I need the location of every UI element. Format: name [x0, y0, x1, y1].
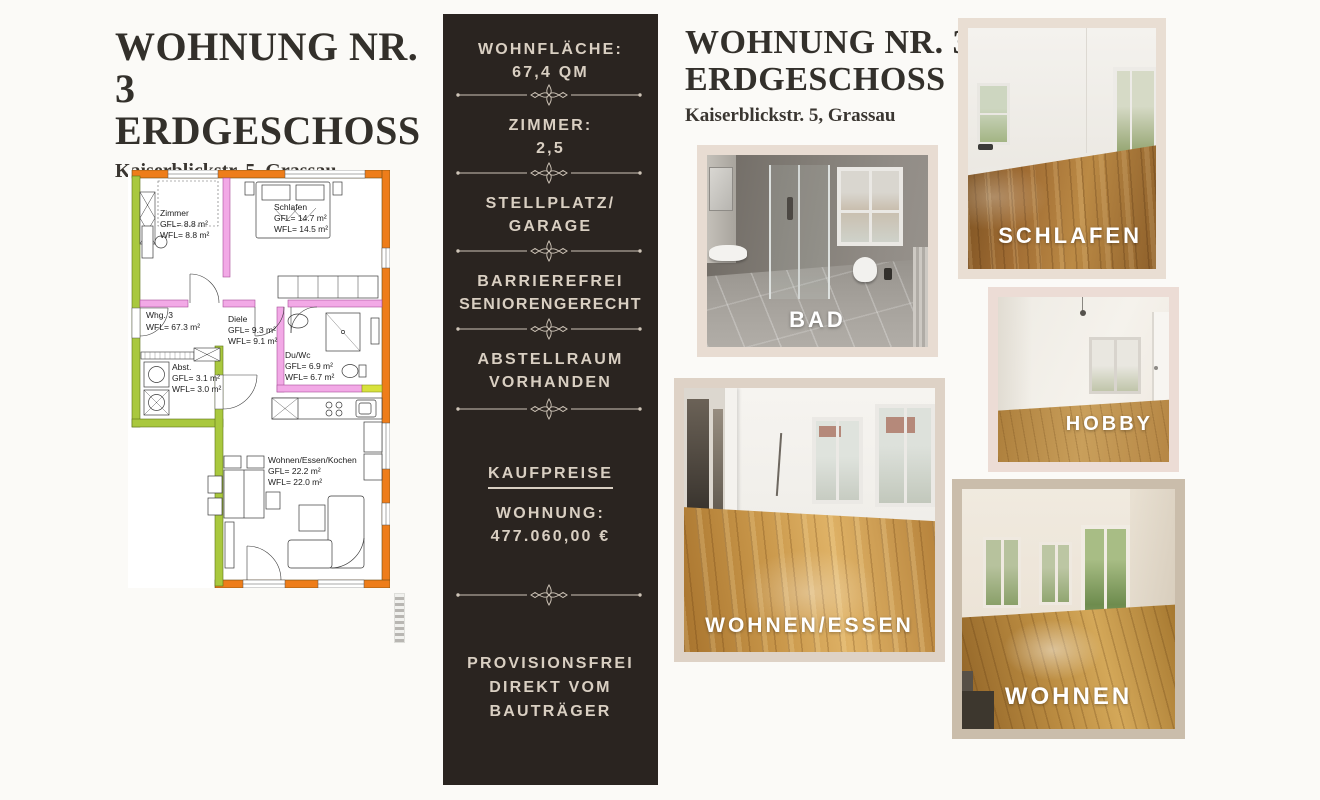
ornament-divider — [455, 160, 643, 186]
room-abst-wfl: WFL= 3.0 m² — [172, 384, 222, 394]
info-value: 67,4 QM — [443, 61, 658, 84]
info-value: 2,5 — [443, 137, 658, 160]
info-value: GARAGE — [443, 215, 658, 238]
photo-label-hobby: HOBBY — [1066, 413, 1153, 436]
room-diele-gfl: GFL= 9.3 m² — [228, 325, 276, 335]
ornament-divider — [455, 316, 643, 342]
info-wohnflaeche: WOHNFLÄCHE: 67,4 QM — [443, 38, 658, 84]
photo-label-wohnen: WOHNEN — [962, 683, 1175, 711]
price-block: WOHNUNG: 477.060,00 € — [443, 502, 658, 548]
toilet — [853, 257, 877, 282]
room-diele-name: Diele — [228, 314, 248, 324]
bathroom-mirror — [709, 167, 733, 211]
door-handle — [978, 144, 993, 150]
room-wohnen-name: Wohnen/Essen/Kochen — [268, 455, 357, 465]
photo-label-schlafen: SCHLAFEN — [998, 223, 1142, 249]
info-barrierefrei: BARRIEREFREI SENIORENGERECHT — [443, 270, 658, 316]
price-heading-text: KAUFPREISE — [488, 462, 613, 489]
price-heading: KAUFPREISE — [443, 462, 658, 489]
room-zimmer-gfl: GFL= 8.8 m² — [160, 219, 208, 229]
info-zimmer: ZIMMER: 2,5 — [443, 114, 658, 160]
sink — [709, 245, 747, 260]
info-value: SENIORENGERECHT — [443, 293, 658, 316]
room-schlafen-wfl: WFL= 14.5 m² — [274, 224, 328, 234]
room-wohnen-wfl: WFL= 22.0 m² — [268, 477, 322, 487]
shower-glass-edge — [798, 165, 800, 299]
floorplan-container: Zimmer GFL= 8.8 m² WFL= 8.8 m² Schlafen … — [128, 170, 390, 588]
title-line-2: ERDGESCHOSS — [115, 110, 445, 152]
ornament-divider — [455, 582, 643, 608]
info-value: VORHANDEN — [443, 371, 658, 394]
room-zimmer-wfl: WFL= 8.8 m² — [160, 230, 210, 240]
room-duwc-gfl: GFL= 6.9 m² — [285, 361, 333, 371]
room-wohnen-gfl: GFL= 22.2 m² — [268, 466, 321, 476]
hobby-window — [1089, 337, 1141, 394]
wohnen-window-2 — [1039, 542, 1073, 606]
floor-sheen — [994, 614, 1111, 686]
room-diele-wfl: WFL= 9.1 m² — [228, 336, 278, 346]
plan-stamp — [394, 593, 405, 643]
left-header: WOHNUNG NR. 3 ERDGESCHOSS Kaiserblickstr… — [115, 26, 445, 183]
yellow-wall-segment — [362, 385, 382, 392]
page-title-right: WOHNUNG NR. 3 ERDGESCHOSS — [685, 24, 985, 98]
bedroom-corner — [1086, 28, 1087, 153]
ornament-divider — [455, 238, 643, 264]
wohnen-window-1 — [983, 537, 1021, 608]
title-line-2: ERDGESCHOSS — [685, 61, 985, 98]
apartment-label-line1: Whg. 3 — [146, 310, 173, 320]
room-duwc-wfl: WFL= 6.7 m² — [285, 372, 335, 382]
title-line-1: WOHNUNG NR. 3 — [685, 24, 985, 61]
info-panel: WOHNFLÄCHE: 67,4 QM ZIMMER: 2,5 STELLPLA… — [443, 14, 658, 785]
wohnen-essen-photo-image: WOHNEN/ESSEN — [684, 388, 935, 652]
bathroom-window — [837, 167, 902, 246]
page-title: WOHNUNG NR. 3 ERDGESCHOSS — [115, 26, 445, 152]
price-value: 477.060,00 € — [443, 525, 658, 548]
room-schlafen-name: Schlafen — [274, 202, 307, 212]
floorplan: Zimmer GFL= 8.8 m² WFL= 8.8 m² Schlafen … — [128, 170, 390, 588]
floor-sheen — [968, 161, 1053, 233]
room-abst-gfl: GFL= 3.1 m² — [172, 373, 220, 383]
ornament-divider — [455, 82, 643, 108]
room-abst-name: Abst. — [172, 362, 191, 372]
photo-label-wohnen-essen: WOHNEN/ESSEN — [684, 614, 935, 638]
info-label: ABSTELLRAUM — [443, 348, 658, 371]
info-label: ZIMMER: — [443, 114, 658, 137]
living-window-1 — [812, 417, 863, 504]
provision-line2: DIREKT VOM — [443, 676, 658, 700]
shower-fixture — [787, 197, 794, 220]
photo-wohnen-essen: WOHNEN/ESSEN — [674, 378, 945, 662]
provision-line1: PROVISIONSFREI — [443, 652, 658, 676]
bad-photo-image: BAD — [707, 155, 928, 347]
info-label: WOHNFLÄCHE: — [443, 38, 658, 61]
info-label: BARRIEREFREI — [443, 270, 658, 293]
right-header: WOHNUNG NR. 3 ERDGESCHOSS Kaiserblickstr… — [685, 24, 985, 127]
photo-label-bad: BAD — [707, 307, 928, 333]
info-label: STELLPLATZ/ — [443, 192, 658, 215]
room-schlafen-gfl: GFL= 14.7 m² — [274, 213, 327, 223]
hallway-doorway-2 — [713, 409, 723, 525]
address-right: Kaiserblickstr. 5, Grassau — [685, 105, 985, 127]
price-label: WOHNUNG: — [443, 502, 658, 525]
photo-schlafen: SCHLAFEN — [958, 18, 1166, 279]
schlafen-photo-image: SCHLAFEN — [968, 28, 1156, 269]
hobby-photo-image: HOBBY — [998, 297, 1169, 462]
bedroom-window — [977, 83, 1009, 144]
room-zimmer-name: Zimmer — [160, 208, 189, 218]
living-window-2 — [875, 404, 935, 507]
photo-hobby: HOBBY — [988, 287, 1179, 472]
provision-line3: BAUTRÄGER — [443, 700, 658, 724]
provision-note: PROVISIONSFREI DIREKT VOM BAUTRÄGER — [443, 652, 658, 724]
room-duwc-name: Du/Wc — [285, 350, 311, 360]
info-stellplatz: STELLPLATZ/ GARAGE — [443, 192, 658, 238]
photo-wohnen: WOHNEN — [952, 479, 1185, 739]
ornament-divider — [455, 396, 643, 422]
apartment-label-line2: WFL= 67.3 m² — [146, 322, 200, 332]
wohnen-photo-image: WOHNEN — [962, 489, 1175, 729]
bin — [884, 268, 892, 280]
info-abstellraum: ABSTELLRAUM VORHANDEN — [443, 348, 658, 394]
photo-bad: BAD — [697, 145, 938, 357]
title-line-1: WOHNUNG NR. 3 — [115, 26, 445, 110]
